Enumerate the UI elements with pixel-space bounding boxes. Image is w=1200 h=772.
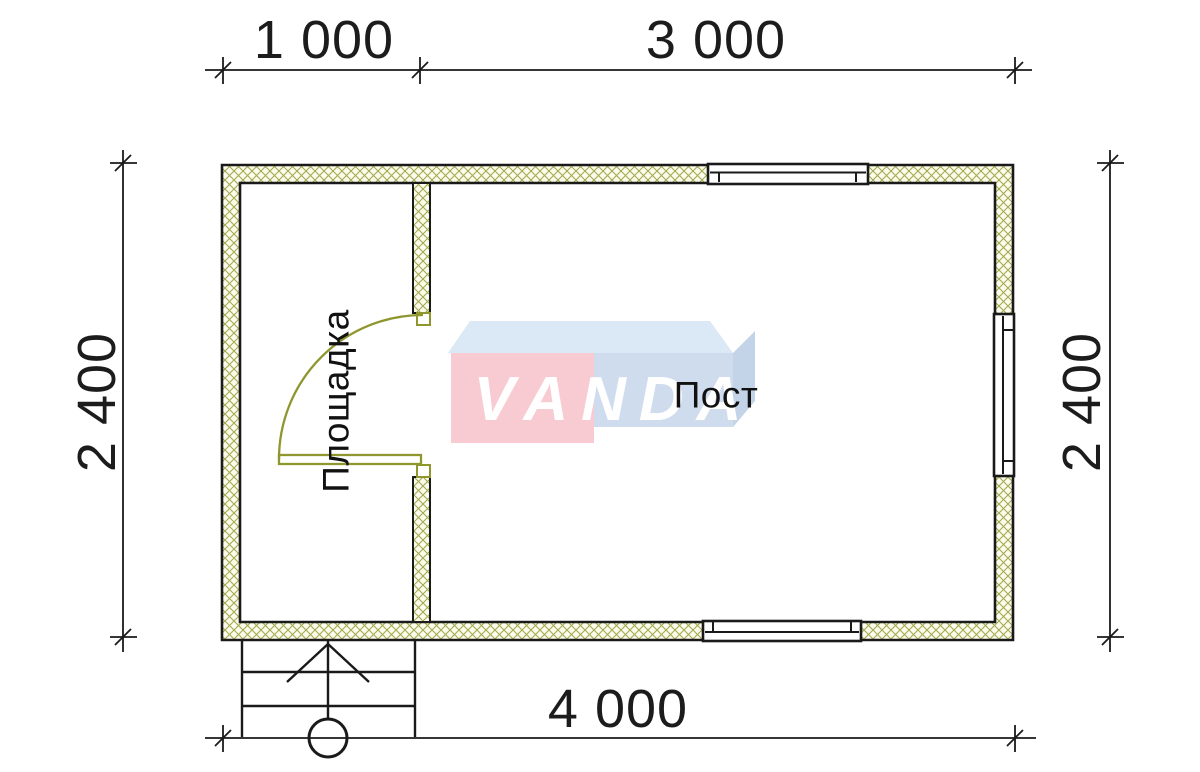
floor-plan-canvas: VANDA 1 000 3 000 2 400 2 400 4 000 Площ…	[0, 0, 1200, 772]
staircase-with-arrow	[242, 641, 415, 757]
dimension-label-right: 2 400	[1055, 332, 1109, 472]
partition-wall	[413, 183, 430, 622]
room-label-platform: Площадка	[318, 309, 355, 492]
dimension-label-left: 2 400	[70, 332, 124, 472]
window-top	[708, 164, 868, 184]
window-right	[994, 314, 1014, 476]
dimension-label-top-right: 3 000	[646, 13, 786, 67]
room-label-post: Пост	[674, 377, 759, 414]
dimension-label-bottom: 4 000	[548, 682, 688, 736]
window-bottom	[703, 621, 861, 641]
dimension-label-top-left: 1 000	[254, 13, 394, 67]
